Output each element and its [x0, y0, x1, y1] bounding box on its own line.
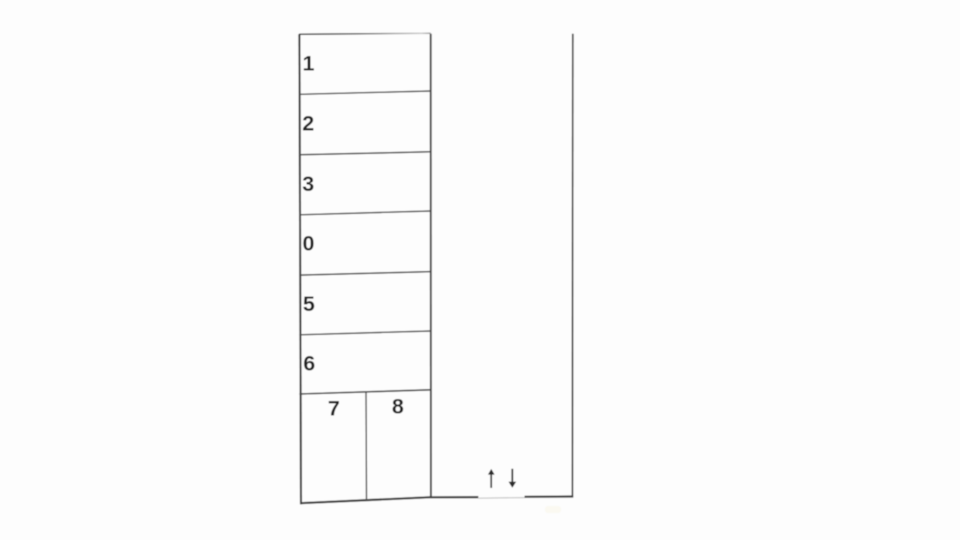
svg-text:3: 3: [302, 172, 314, 196]
svg-text:2: 2: [302, 111, 314, 135]
svg-text:0: 0: [303, 232, 315, 256]
svg-text:5: 5: [303, 292, 315, 316]
svg-text:1: 1: [303, 52, 315, 76]
svg-text:6: 6: [303, 351, 315, 375]
svg-text:7: 7: [328, 397, 340, 421]
svg-text:8: 8: [392, 395, 404, 419]
